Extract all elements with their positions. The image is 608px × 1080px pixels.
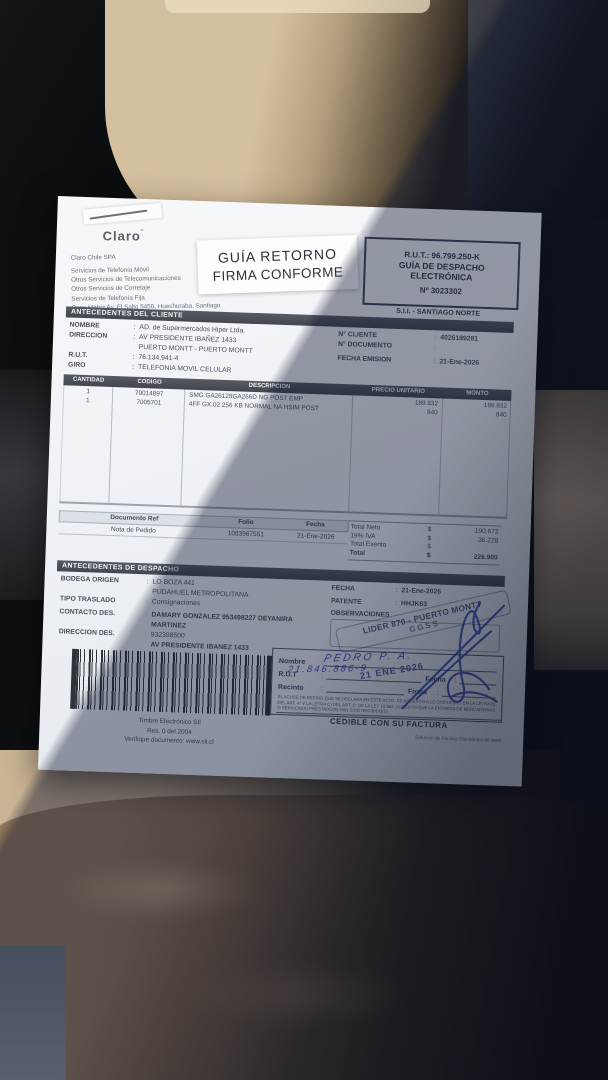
pdf417-barcode [70,649,272,716]
client-fields-left: NOMBRE:AD. de Supermercados Hiper Ltda. … [68,320,320,379]
pen-mark [90,210,148,220]
brown-jacket [0,795,608,1080]
provider-footnote: Solución de Factura Electrónica de www [325,733,501,744]
blank-sticker [83,203,162,225]
claro-logo: Claro˘ [103,228,145,243]
photo-of-dispatch-guide: Claro˘ Claro Chile SPA Servicios de Tele… [0,0,608,1080]
floor-corner [0,945,66,1080]
rut-box: R.U.T.: 96.799.250-K GUÍA DE DESPACHOELE… [362,237,520,310]
seat-edge-right [534,390,608,670]
totals-box: Total Neto$190.672 19% IVA$36.228 Total … [347,520,500,566]
handwritten-rut: 21.846.886-9 [287,663,369,675]
client-fields-right: N° CLIENTE:4026189281 N° DOCUMENTO: FECH… [337,330,513,370]
doc-number: Nº 3023302 [420,286,462,296]
return-sticker-line1: GUÍA RETORNO [218,246,338,266]
car-interior-dark-right [468,0,608,220]
doc-type: GUÍA DE DESPACHOELECTRÓNICA [398,261,485,284]
jacket-fold [60,860,260,920]
items-table-body: 1 70014897 SMG GA26128GA266D NG POST EMP… [59,385,511,519]
client-row: FECHA EMISION:21-Ene-2026 [337,354,512,370]
jacket-fold [180,960,410,1030]
return-sticker-line2: FIRMA CONFORME [212,264,343,284]
return-sticker: GUÍA RETORNO FIRMA CONFORME [197,235,359,295]
claro-logo-accent: ˘ [141,228,145,237]
document-paper: Claro˘ Claro Chile SPA Servicios de Tele… [38,196,542,787]
reference-table: Documento Ref Folio Fecha Nota de Pedido… [58,510,349,544]
timbre-electronico: Timbre Electrónico SII Res. 0 del 2004 V… [69,714,270,750]
seat-highlight [165,0,430,13]
claro-logo-text: Claro [103,229,141,244]
